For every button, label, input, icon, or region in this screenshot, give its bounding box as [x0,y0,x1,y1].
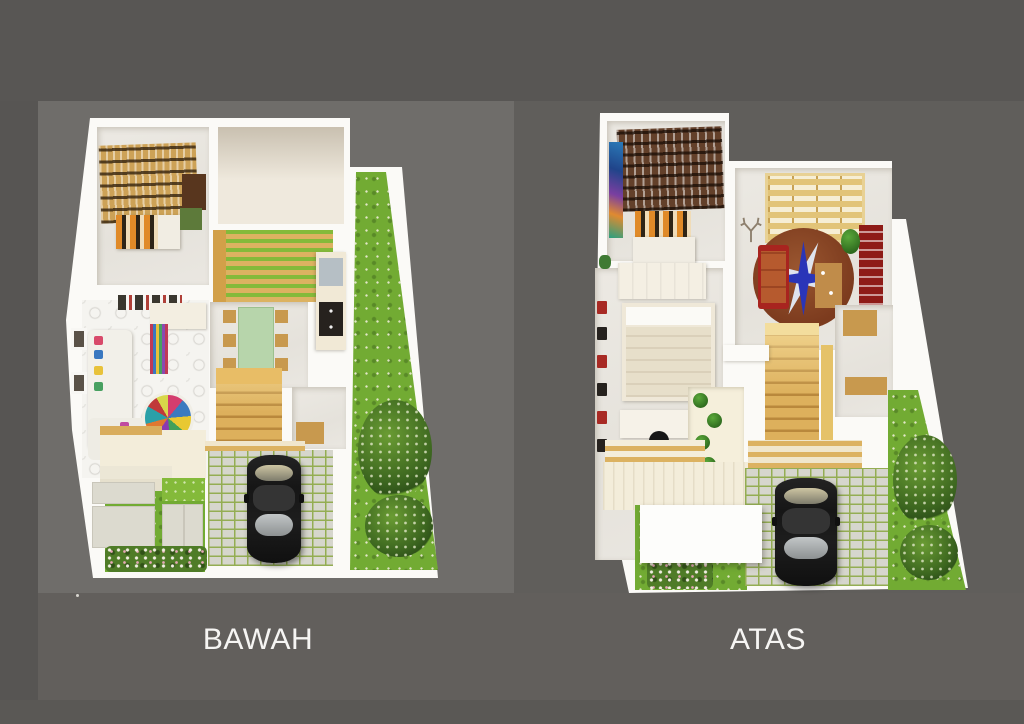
background-bottom-band [0,700,1024,724]
bawah-wall-frame [71,328,87,350]
bawah-sofa-pillow [94,366,103,375]
bawah-garden-shrub [358,400,432,500]
car-windshield [784,488,829,504]
bawah-stepping-stone [92,506,155,548]
bawah-flower-bed [105,546,207,572]
atas-wall-decal [597,327,607,340]
atas-library-bed-art [635,211,691,239]
atas-pot-plant [707,413,722,428]
floor-plan-atas [575,105,975,597]
bawah-garden-shrub [365,495,433,557]
bawah-open-room-floor [218,127,344,224]
bawah-bedroom-rug [180,208,202,230]
atas-garden-shrub [893,435,957,525]
background-left-strip [0,101,38,700]
bawah-court-pergola [213,230,333,302]
bawah-stepping-stone [92,482,155,504]
atas-porch-roof-slab [640,505,762,563]
atas-hall-cabinet [843,310,877,336]
background-top-band [0,0,1024,101]
atas-red-shelf [859,225,883,305]
bawah-bed-art-cover [116,215,158,249]
bawah-porch-beam [100,426,162,435]
car-mirror [835,517,840,526]
bawah-study-desk [182,174,206,210]
atas-car [775,478,837,586]
bawah-striped-curtain [150,324,168,374]
car-mirror [244,494,249,503]
bawah-dining-chair [223,310,236,323]
car-rear-window [784,537,827,559]
bawah-dining-chair [275,334,288,347]
bawah-stepping-stone [162,504,184,550]
atas-wall-plant [599,255,611,269]
atas-wall-decal [597,301,607,314]
bawah-court-wood-panel [213,230,226,302]
car-mirror [299,494,304,503]
atas-wood-desk [815,263,842,308]
bawah-stair-landing [216,368,282,384]
bawah-grass-patch [162,478,205,501]
bawah-dining-chair [275,310,288,323]
atas-wall-decal [597,355,607,368]
bawah-driveway-beam [205,441,305,451]
bawah-kitchen-stove [319,302,343,336]
bawah-wall-frame [71,372,87,394]
bawah-kitchen-sink [319,258,343,286]
floor-plan-bawah [60,110,445,588]
atas-hall-cabinet [845,377,887,395]
label-bawah: BAWAH [158,622,358,658]
car-rear-window [255,514,293,536]
atas-wall-decal [597,383,607,396]
car-mirror [772,517,777,526]
car-roof [253,485,294,511]
stray-dot [76,594,79,597]
bawah-car [247,455,301,563]
composite-render: BAWAH ATAS [0,0,1024,724]
atas-pot-plant [693,393,708,408]
bawah-sofa-pillow [94,336,103,345]
atas-planter-ledge [723,345,769,361]
atas-balcony-pergola [605,440,705,462]
atas-flower-bed [647,560,713,589]
bawah-sofa-pillow [94,382,103,391]
bawah-stepping-stone [184,504,203,550]
car-roof [782,508,829,534]
label-atas: ATAS [668,622,868,658]
bawah-dining-table [238,307,274,375]
atas-wall-decal [597,411,607,424]
atas-wall-painting [609,142,623,238]
atas-red-sofa-cushions [761,251,786,303]
atas-green-plant [841,229,860,254]
bawah-sofa-pillow [94,350,103,359]
atas-driveway-pergola [748,440,862,468]
bawah-dining-chair [223,334,236,347]
atas-wardrobe [618,263,706,299]
atas-library-bed [633,237,695,263]
atas-dark-bookshelf [617,126,725,212]
atas-stair-side-wood [821,345,833,455]
atas-bed-pillows [626,307,711,325]
car-windshield [255,465,294,481]
deer-antler-decor [737,213,765,245]
atas-garden-shrub [900,525,958,580]
